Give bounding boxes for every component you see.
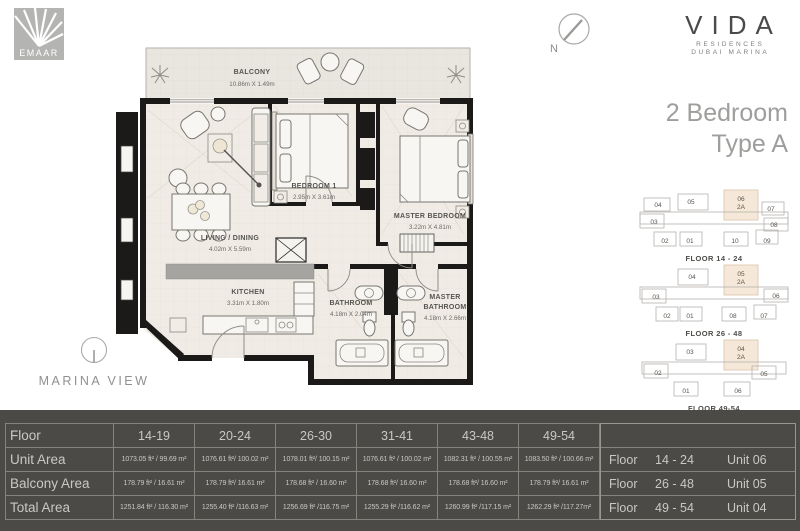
area-cell: 1073.05 ft² / 99.69 m² bbox=[114, 448, 195, 472]
kitchen-counter-slab bbox=[166, 264, 314, 279]
north-label: N bbox=[550, 43, 558, 55]
floor-label: Floor bbox=[601, 501, 655, 515]
bedroom1-dims: 2.95m X 3.61m bbox=[293, 194, 335, 201]
keyplan-floor-26-48: 04 05 2A 03 06 02 01 08 07 FLOOR 26 - 48 bbox=[626, 261, 800, 338]
unit-number: 04 bbox=[688, 274, 696, 281]
unit-type-highlight: 2A bbox=[737, 204, 746, 211]
unit-type-highlight: 2A bbox=[737, 279, 746, 286]
unit-number: 01 bbox=[686, 238, 694, 245]
unit-number: 05 bbox=[687, 199, 695, 206]
area-cell: 1255.40 ft² /116.63 m² bbox=[195, 496, 276, 520]
keyplan-outline bbox=[642, 344, 786, 396]
floor-label: Floor bbox=[601, 477, 655, 491]
floorplan: BALCONY 10.86m X 1.49m LIVING / DINING 4… bbox=[108, 28, 520, 405]
master-bathroom-label2: BATHROOM bbox=[423, 304, 466, 311]
unit-table-row: Floor 26 - 48 Unit 05 bbox=[601, 472, 795, 496]
floor-range-header: 43-48 bbox=[438, 424, 519, 448]
vida-logo: VIDA RESIDENCES DUBAI MARINA bbox=[664, 10, 794, 57]
area-cell: 1082.31 ft² / 100.55 m² bbox=[438, 448, 519, 472]
unit-number-label: Unit 04 bbox=[727, 501, 795, 515]
area-cell: 1076.61 ft²/ 100.02 m² bbox=[195, 448, 276, 472]
master-bedroom-dims: 3.22m X 4.81m bbox=[409, 224, 451, 231]
unit-table-empty-row bbox=[601, 424, 795, 448]
area-cell: 1262.29 ft² /117.27m² bbox=[519, 496, 600, 520]
unit-number: 01 bbox=[686, 313, 694, 320]
unit-number: 02 bbox=[654, 370, 662, 377]
unit-number: 04 bbox=[654, 202, 662, 209]
area-cell: 1256.69 ft² /116.75 m² bbox=[276, 496, 357, 520]
area-band: Floor 14-19 20-24 26-30 31-41 43-48 49-5… bbox=[0, 410, 800, 531]
keyplan-floor-14-24: 04 05 06 2A 07 03 08 02 01 10 09 FLOOR 1… bbox=[626, 186, 800, 263]
unit-number-label: Unit 06 bbox=[727, 453, 795, 467]
unit-table: Floor 14 - 24 Unit 06 Floor 26 - 48 Unit… bbox=[600, 423, 796, 520]
vida-sub-residences: RESIDENCES bbox=[664, 41, 797, 49]
area-cell: 1255.29 ft² /116.62 m² bbox=[357, 496, 438, 520]
unit-type-line2: Type A bbox=[666, 129, 788, 160]
unit-table-row: Floor 49 - 54 Unit 04 bbox=[601, 496, 795, 519]
sofa bbox=[252, 108, 270, 206]
floor-header: Floor bbox=[6, 424, 114, 448]
unit-number: 10 bbox=[731, 238, 739, 245]
area-cell: 178.79 ft² / 16.61 m² bbox=[114, 472, 195, 496]
unit-number: 06 bbox=[772, 293, 780, 300]
table-row: Total Area 1251.84 ft² / 116.30 m² 1255.… bbox=[6, 496, 600, 520]
unit-table-row: Floor 14 - 24 Unit 06 bbox=[601, 448, 795, 472]
balcony-openings bbox=[170, 98, 440, 104]
area-table: Floor 14-19 20-24 26-30 31-41 43-48 49-5… bbox=[5, 423, 600, 520]
unit-number-highlight: 04 bbox=[737, 346, 745, 353]
floor-label: Floor bbox=[601, 453, 655, 467]
unit-number: 07 bbox=[767, 206, 775, 213]
kitchen-label: KITCHEN bbox=[231, 289, 264, 296]
area-cell: 178.68 ft²/ 16.60 m² bbox=[357, 472, 438, 496]
unit-number: 02 bbox=[663, 313, 671, 320]
view-direction-icon bbox=[79, 336, 109, 366]
area-cell: 1083.50 ft² / 100.66 m² bbox=[519, 448, 600, 472]
unit-number: 07 bbox=[760, 313, 768, 320]
dining-table bbox=[172, 183, 230, 241]
balcony-dims: 10.86m X 1.49m bbox=[229, 81, 274, 88]
unit-number-highlight: 05 bbox=[737, 271, 745, 278]
area-cell: 1076.61 ft² / 100.02 m² bbox=[357, 448, 438, 472]
table-header-row: Floor 14-19 20-24 26-30 31-41 43-48 49-5… bbox=[6, 424, 600, 448]
area-cell: 1078.01 ft²/ 100.15 m² bbox=[276, 448, 357, 472]
unit-number-label: Unit 05 bbox=[727, 477, 795, 491]
living-label: LIVING / DINING bbox=[201, 235, 259, 242]
area-cell: 1260.99 ft² /117.15 m² bbox=[438, 496, 519, 520]
bathroom-dims: 4.18m X 2.04m bbox=[330, 311, 372, 318]
master-bathroom-label1: MASTER bbox=[429, 294, 460, 301]
unit-number: 01 bbox=[682, 388, 690, 395]
emaar-sunburst-icon: EMAAR bbox=[14, 8, 64, 60]
floor-range-header: 31-41 bbox=[357, 424, 438, 448]
floor-range-header: 14-19 bbox=[114, 424, 195, 448]
floor-range-header: 49-54 bbox=[519, 424, 600, 448]
row-label: Unit Area bbox=[6, 448, 114, 472]
master-bathroom-dims: 4.18m X 2.66m bbox=[424, 315, 466, 322]
compass: N bbox=[538, 6, 608, 65]
brochure-page: EMAAR VIDA RESIDENCES DUBAI MARINA 2 Bed… bbox=[0, 0, 800, 531]
unit-number: 08 bbox=[729, 313, 737, 320]
area-cell: 178.79 ft²/ 16.61 m² bbox=[195, 472, 276, 496]
floor-range: 14 - 24 bbox=[655, 453, 727, 467]
unit-type-line1: 2 Bedroom bbox=[666, 98, 788, 129]
compass-needle-icon bbox=[564, 20, 582, 40]
unit-number: 05 bbox=[760, 371, 768, 378]
unit-type-highlight: 2A bbox=[737, 354, 746, 361]
unit-number-highlight: 06 bbox=[737, 196, 745, 203]
vida-logo-text: VIDA bbox=[664, 10, 800, 41]
master-bedroom-label: MASTER BEDROOM bbox=[394, 213, 466, 220]
living-dims: 4.02m X 5.59m bbox=[209, 246, 251, 253]
unit-type-title: 2 Bedroom Type A bbox=[666, 98, 788, 160]
floor-range: 26 - 48 bbox=[655, 477, 727, 491]
unit-number: 09 bbox=[763, 238, 771, 245]
bedroom1-label: BEDROOM 1 bbox=[291, 183, 336, 190]
table-row: Balcony Area 178.79 ft² / 16.61 m² 178.7… bbox=[6, 472, 600, 496]
unit-number: 03 bbox=[650, 219, 658, 226]
floor-range-header: 26-30 bbox=[276, 424, 357, 448]
row-label: Total Area bbox=[6, 496, 114, 520]
floor-range: 49 - 54 bbox=[655, 501, 727, 515]
emaar-logo: EMAAR bbox=[14, 8, 64, 60]
bathroom-label: BATHROOM bbox=[329, 300, 372, 307]
row-label: Balcony Area bbox=[6, 472, 114, 496]
keyplan-floor-49-54: 03 04 2A 02 05 01 06 FLOOR 49-54 bbox=[626, 336, 800, 413]
area-cell: 178.79 ft²/ 16.61 m² bbox=[519, 472, 600, 496]
area-cell: 178.68 ft²/ 16.60 m² bbox=[438, 472, 519, 496]
emaar-logo-text: EMAAR bbox=[19, 48, 59, 58]
unit-number: 06 bbox=[734, 388, 742, 395]
kitchen-dims: 3.31m X 1.80m bbox=[227, 300, 269, 307]
unit-number: 02 bbox=[661, 238, 669, 245]
unit-number: 03 bbox=[686, 349, 694, 356]
floor-range-header: 20-24 bbox=[195, 424, 276, 448]
area-cell: 1251.84 ft² / 116.30 m² bbox=[114, 496, 195, 520]
balcony-label: BALCONY bbox=[234, 69, 271, 76]
table-row: Unit Area 1073.05 ft² / 99.69 m² 1076.61… bbox=[6, 448, 600, 472]
vida-sub-marina: DUBAI MARINA bbox=[664, 49, 797, 57]
area-cell: 178.68 ft² / 16.60 m² bbox=[276, 472, 357, 496]
unit-number: 08 bbox=[770, 222, 778, 229]
unit-number: 03 bbox=[652, 294, 660, 301]
